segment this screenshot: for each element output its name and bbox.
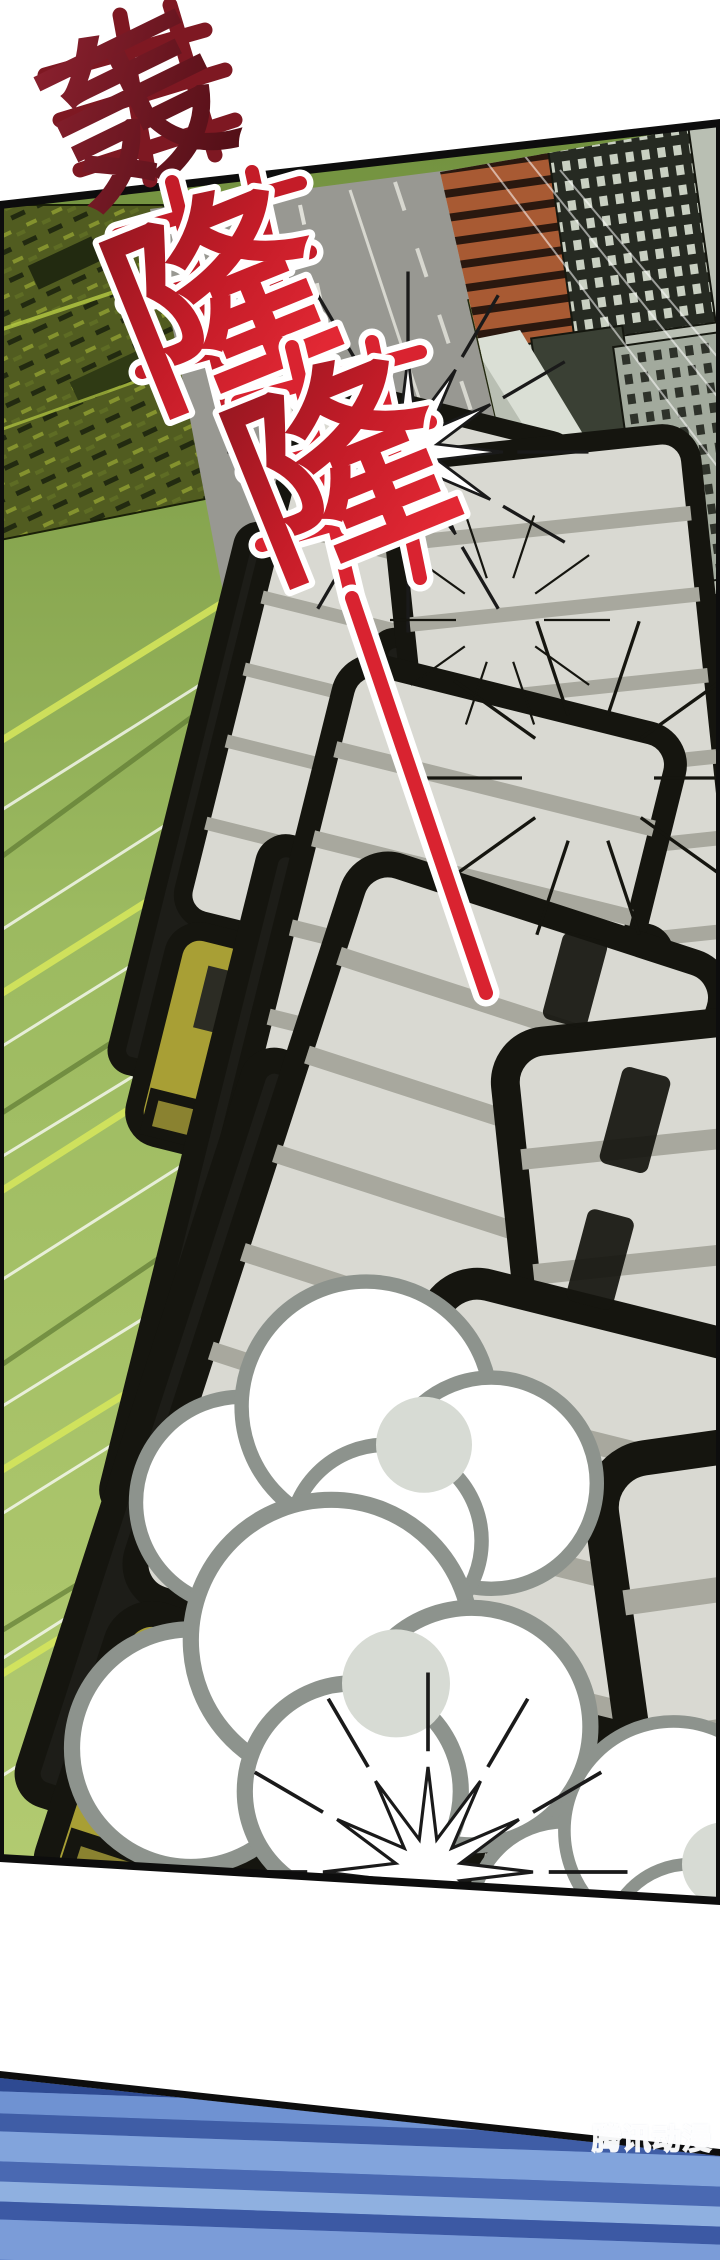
artwork: 轰 隆 隆 <box>0 0 720 2260</box>
comic-page: 轰 隆 隆 <box>0 0 720 2260</box>
watermark-text: 腾讯动漫 <box>592 2116 720 2158</box>
